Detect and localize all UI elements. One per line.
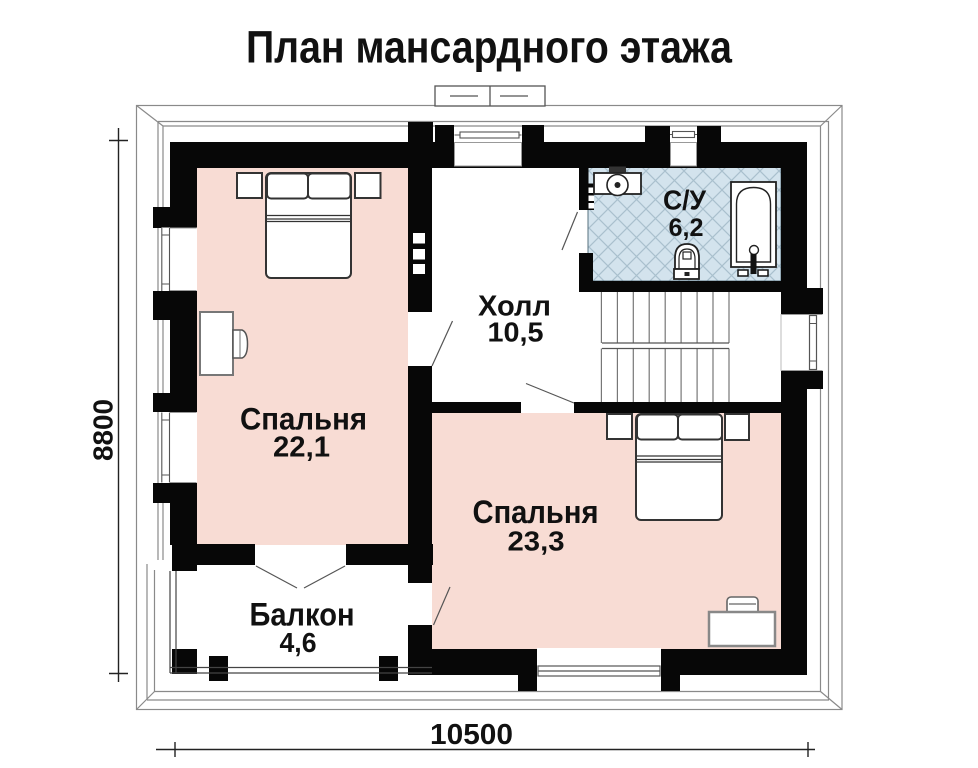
svg-text:22,1: 22,1 bbox=[273, 431, 330, 463]
svg-text:4,6: 4,6 bbox=[280, 627, 317, 658]
svg-text:10,5: 10,5 bbox=[488, 317, 544, 348]
svg-text:10500: 10500 bbox=[430, 719, 513, 751]
svg-text:8800: 8800 bbox=[88, 399, 119, 461]
svg-text:С/У: С/У bbox=[663, 185, 707, 216]
svg-text:План мансардного этажа: План мансардного этажа bbox=[246, 22, 733, 73]
svg-text:Спальня: Спальня bbox=[473, 494, 599, 530]
svg-text:6,2: 6,2 bbox=[669, 214, 704, 242]
svg-text:23,3: 23,3 bbox=[508, 526, 565, 557]
